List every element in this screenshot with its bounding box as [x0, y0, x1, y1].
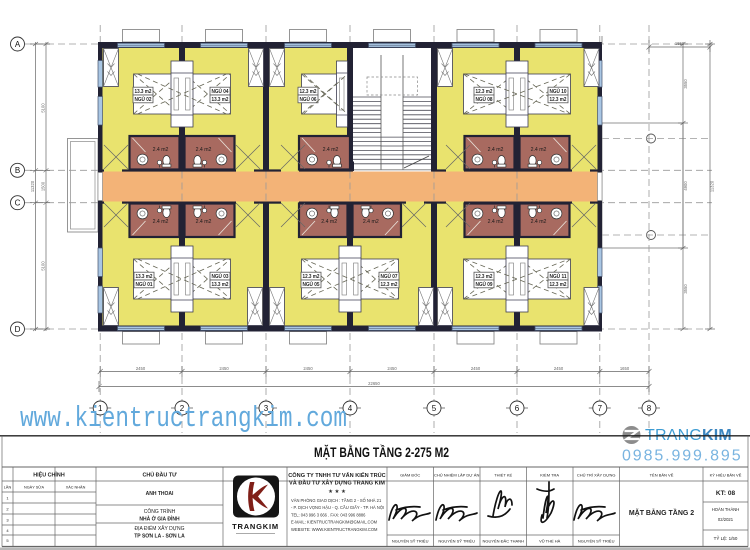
svg-text:NGỦ 03: NGỦ 03: [212, 273, 229, 280]
svg-text:2.4 m2: 2.4 m2: [323, 147, 339, 153]
svg-text:13.3 m2: 13.3 m2: [136, 274, 153, 280]
svg-text:2450: 2450: [554, 366, 564, 371]
svg-text:4900: 4900: [683, 181, 688, 191]
svg-text:C: C: [15, 199, 21, 208]
svg-text:8: 8: [647, 404, 652, 413]
svg-text:- P. DỊCH VỌNG HẬU - Q. CẦU GI: - P. DỊCH VỌNG HẬU - Q. CẦU GIẤY - TP. H…: [291, 505, 384, 510]
svg-text:VĂN PHÒNG GIAO DỊCH : TẦNG 2 -: VĂN PHÒNG GIAO DỊCH : TẦNG 2 - SỐ NHÀ 21: [291, 498, 382, 503]
svg-text:D: D: [15, 325, 21, 334]
svg-text:22650: 22650: [368, 381, 380, 386]
svg-text:NGỦ 06: NGỦ 06: [300, 96, 317, 103]
svg-text:1650: 1650: [675, 41, 685, 46]
svg-text:2.4 m2: 2.4 m2: [488, 219, 504, 225]
svg-text:2450: 2450: [303, 366, 313, 371]
svg-text:12.3 m2: 12.3 m2: [550, 282, 567, 288]
svg-text:VŨ THẾ HÀ: VŨ THẾ HÀ: [539, 539, 561, 544]
svg-text:VÀ ĐẦU TƯ XÂY DỰNG TRANG KIM: VÀ ĐẦU TƯ XÂY DỰNG TRANG KIM: [289, 480, 385, 487]
svg-text:12.3 m2: 12.3 m2: [303, 274, 320, 280]
svg-text:TEL: 043 996 3 666 . FAX: 043: TEL: 043 996 3 666 . FAX: 043 996 8886: [291, 512, 366, 517]
svg-text:B: B: [15, 166, 20, 175]
svg-text:13.3 m2: 13.3 m2: [212, 282, 229, 288]
svg-text:NGỦ 10: NGỦ 10: [550, 88, 567, 95]
svg-text:02/2021: 02/2021: [718, 517, 734, 522]
svg-text:4: 4: [348, 404, 353, 413]
svg-text:NGỦ 11: NGỦ 11: [550, 273, 567, 280]
svg-text:ĐỊA ĐIỂM XÂY DỰNG: ĐỊA ĐIỂM XÂY DỰNG: [134, 525, 184, 532]
svg-text:CÔNG TRÌNH: CÔNG TRÌNH: [144, 508, 176, 515]
svg-text:A: A: [15, 40, 21, 49]
svg-text:MẶT BẰNG TẦNG 2-275 M2: MẶT BẰNG TẦNG 2-275 M2: [314, 443, 449, 460]
svg-text:ANH THOAI: ANH THOAI: [146, 491, 174, 497]
svg-text:NGÀY SỬA: NGÀY SỬA: [24, 485, 45, 490]
svg-text:12.3 m2: 12.3 m2: [550, 97, 567, 103]
svg-text:2.4 m2: 2.4 m2: [488, 147, 504, 153]
svg-text:NGỦ 02: NGỦ 02: [135, 96, 152, 103]
svg-text:NGỦ 01: NGỦ 01: [136, 281, 153, 288]
svg-text:WEBSITE: WWW.KIENTRUCTRANGKIM.: WEBSITE: WWW.KIENTRUCTRANGKIM.COM: [291, 527, 378, 532]
svg-text:2450: 2450: [471, 366, 481, 371]
svg-text:TRANGKIM: TRANGKIM: [232, 522, 279, 531]
svg-text:11320: 11320: [710, 180, 715, 192]
svg-text:KIỂM TRA: KIỂM TRA: [540, 473, 559, 478]
svg-text:2.4 m2: 2.4 m2: [531, 219, 547, 225]
svg-text:12.3 m2: 12.3 m2: [476, 89, 493, 95]
svg-text:TP SƠN LA - SƠN LA: TP SƠN LA - SƠN LA: [134, 534, 185, 540]
svg-text:12.3 m2: 12.3 m2: [300, 89, 317, 95]
svg-text:NGUYỄN SỸ TRIỆU: NGUYỄN SỸ TRIỆU: [392, 539, 429, 544]
svg-text:NGỦ 08: NGỦ 08: [476, 96, 493, 103]
svg-text:2450: 2450: [219, 366, 229, 371]
svg-text:HOÀN THÀNH: HOÀN THÀNH: [712, 507, 740, 512]
svg-text:13.3 m2: 13.3 m2: [135, 89, 152, 95]
svg-text:2450: 2450: [136, 366, 146, 371]
svg-text:5100: 5100: [41, 103, 46, 113]
svg-text:NGỦ 05: NGỦ 05: [303, 281, 320, 288]
svg-text:NGỦ 07: NGỦ 07: [381, 273, 398, 280]
svg-text:NHÀ Ở GIA ĐÌNH: NHÀ Ở GIA ĐÌNH: [139, 515, 180, 523]
svg-text:3550: 3550: [683, 284, 688, 294]
svg-text:2.4 m2: 2.4 m2: [153, 147, 169, 153]
svg-text:1650: 1650: [620, 366, 630, 371]
svg-text:CHỦ NHIỆM LẬP DỰ ÁN: CHỦ NHIỆM LẬP DỰ ÁN: [434, 473, 479, 478]
svg-text:NGỦ 09: NGỦ 09: [476, 281, 493, 288]
svg-text:12.3 m2: 12.3 m2: [381, 282, 398, 288]
svg-text:1500: 1500: [41, 181, 46, 191]
svg-text:0985.999.895: 0985.999.895: [622, 448, 743, 465]
svg-text:2.4 m2: 2.4 m2: [196, 147, 212, 153]
svg-text:TỶ LỆ: 1/50: TỶ LỆ: 1/50: [714, 534, 738, 541]
svg-text:GIÁM ĐỐC: GIÁM ĐỐC: [400, 473, 420, 478]
svg-text:2.4 m2: 2.4 m2: [363, 219, 379, 225]
svg-text:LẦN: LẦN: [4, 486, 12, 490]
svg-text:CÔNG TY TNHH TƯ VẤN KIẾN TRÚC: CÔNG TY TNHH TƯ VẤN KIẾN TRÚC: [288, 471, 385, 479]
svg-text:11320: 11320: [30, 180, 35, 192]
svg-text:5: 5: [432, 404, 437, 413]
svg-text:2.4 m2: 2.4 m2: [196, 219, 212, 225]
svg-text:2.4 m2: 2.4 m2: [153, 219, 169, 225]
svg-text:7: 7: [598, 404, 603, 413]
svg-text:NGUYỄN ĐẮC THANH: NGUYỄN ĐẮC THANH: [482, 539, 524, 544]
svg-text:CHỦ TRÌ XÂY DỰNG: CHỦ TRÌ XÂY DỰNG: [577, 473, 616, 478]
svg-text:TÊN BẢN VẼ: TÊN BẢN VẼ: [650, 473, 674, 478]
svg-text:2450: 2450: [387, 366, 397, 371]
svg-text:www.kientructrangkim.com: www.kientructrangkim.com: [20, 402, 347, 435]
svg-text:THIẾT KẾ: THIẾT KẾ: [494, 473, 512, 478]
svg-text:2.4 m2: 2.4 m2: [531, 147, 547, 153]
svg-text:NGỦ 04: NGỦ 04: [212, 88, 229, 95]
svg-text:XÁC NHẬN: XÁC NHẬN: [66, 485, 86, 490]
svg-text:KT: 08: KT: 08: [716, 490, 736, 497]
svg-text:NGUYỄN SỸ TRIỆU: NGUYỄN SỸ TRIỆU: [438, 539, 475, 544]
svg-text:2.4 m2: 2.4 m2: [321, 219, 337, 225]
svg-text:NGUYỄN SỸ TRIỆU: NGUYỄN SỸ TRIỆU: [578, 539, 615, 544]
svg-text:E-MAIL: KIENTRUCTRANGKIM@GMAIL: E-MAIL: KIENTRUCTRANGKIM@GMAIL.COM: [291, 520, 378, 525]
svg-text:3550: 3550: [683, 79, 688, 89]
svg-text:6: 6: [515, 404, 520, 413]
svg-text:KÝ HIỆU BẢN VẼ: KÝ HIỆU BẢN VẼ: [710, 473, 742, 478]
svg-text:13.3 m2: 13.3 m2: [212, 97, 229, 103]
svg-text:5100: 5100: [41, 261, 46, 271]
svg-text:CHỦ ĐẦU TƯ: CHỦ ĐẦU TƯ: [142, 472, 177, 479]
svg-text:12.3 m2: 12.3 m2: [476, 274, 493, 280]
svg-text:★ ★ ★: ★ ★ ★: [328, 488, 346, 495]
svg-text:HIỆU CHỈNH: HIỆU CHỈNH: [33, 471, 65, 479]
